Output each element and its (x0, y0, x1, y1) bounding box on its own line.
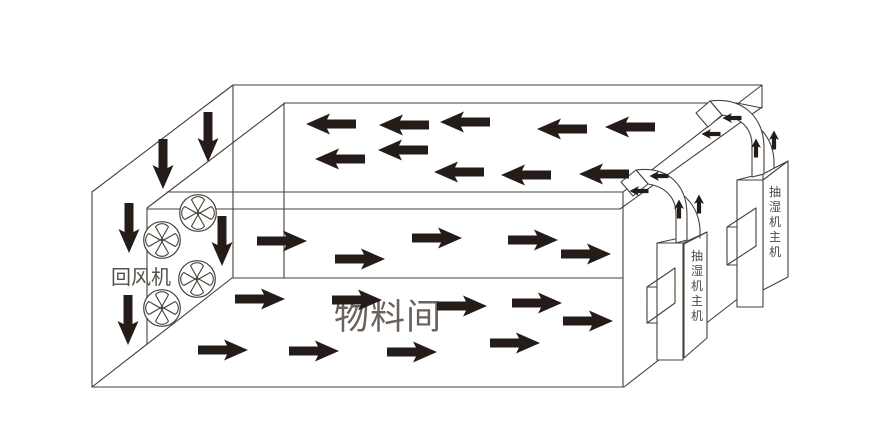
flow-arrow-icon (289, 341, 339, 362)
flow-arrow-icon (198, 340, 248, 361)
airflow-plenum-supply (257, 228, 611, 270)
flow-arrow-icon (563, 311, 613, 332)
flow-arrow-icon (118, 295, 139, 345)
dehumidifier-label-2: 抽湿机主机 (769, 185, 781, 259)
unit1-body (657, 243, 683, 360)
flow-arrow-icon (212, 216, 233, 266)
airflow-ceiling-return (306, 112, 655, 186)
fan-icon (144, 290, 181, 327)
flow-arrow-icon (437, 296, 487, 317)
flow-arrow-icon (702, 129, 721, 139)
flow-arrow-icon (501, 165, 551, 186)
supply-duct-1 (621, 169, 700, 243)
fan-icon (179, 261, 216, 298)
dehumidifier-label-1: 抽湿机主机 (691, 249, 703, 323)
flow-arrow-icon (537, 119, 587, 140)
flow-arrow-icon (306, 114, 356, 135)
flow-arrow-icon (119, 203, 140, 253)
fan-icon (144, 222, 181, 259)
flow-arrow-icon (512, 293, 562, 314)
flow-arrow-icon (378, 140, 428, 161)
flow-arrow-icon (440, 112, 490, 133)
flow-arrow-icon (490, 333, 540, 354)
flow-arrow-icon (561, 244, 611, 265)
return-fans-layer (144, 195, 217, 327)
flow-arrow-icon (387, 342, 437, 363)
flow-arrow-icon (769, 131, 779, 150)
diagram-root: 回风机 物料间 抽湿机主机 抽湿机主机 (0, 0, 892, 434)
flow-arrow-icon (315, 149, 365, 170)
flow-arrow-icon (235, 289, 285, 310)
supply-duct-2 (696, 100, 774, 177)
flow-arrow-icon (434, 162, 484, 183)
flow-arrow-icon (379, 115, 429, 136)
flow-arrow-icon (508, 230, 558, 251)
diagram-canvas: 回风机 物料间 抽湿机主机 抽湿机主机 (0, 0, 892, 434)
fan-icon (180, 195, 217, 232)
flow-arrow-icon (257, 231, 307, 252)
flow-arrow-icon (335, 249, 385, 270)
return-fan-label: 回风机 (111, 265, 171, 289)
flow-arrow-icon (198, 112, 219, 162)
flow-arrow-icon (605, 117, 655, 138)
flow-arrow-icon (412, 228, 462, 249)
roof-slab-lines (285, 85, 762, 108)
unit2-body (737, 180, 763, 307)
flow-arrow-icon (153, 139, 174, 189)
